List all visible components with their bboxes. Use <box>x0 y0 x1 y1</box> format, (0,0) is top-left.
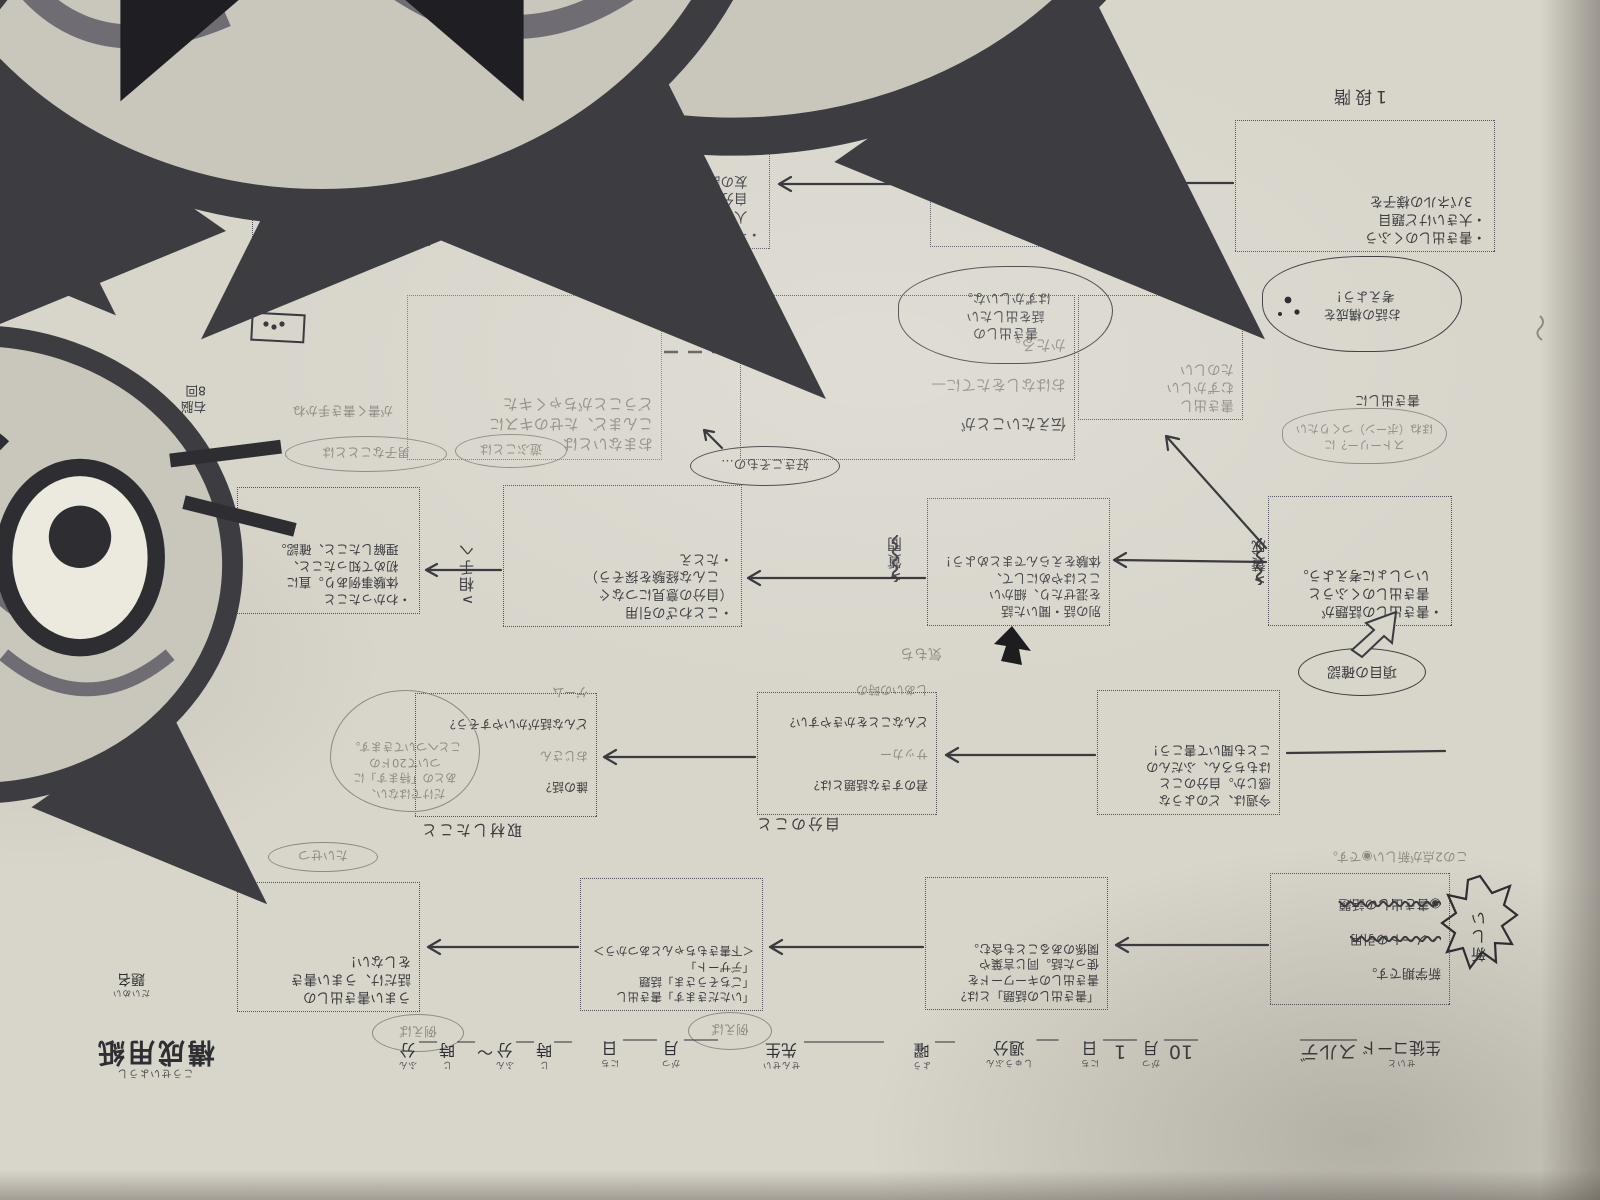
burst-bubble-icon <box>1442 876 1517 968</box>
margin-squiggle <box>1537 316 1543 340</box>
ink-dots-icon <box>1278 297 1300 316</box>
handdrawn-lines-layer <box>0 0 1600 1200</box>
bold-arrow-icon <box>994 626 1031 665</box>
cat-doodle-small <box>0 336 295 905</box>
photo-of-worksheet: 1段階 ・書き出しのくふう ・大きいけど題目 3パネルの様子を 2段階 ・イズト… <box>0 0 1600 1200</box>
hollow-arrow-icon <box>1352 612 1396 657</box>
tv-doodle-icon <box>251 313 304 343</box>
